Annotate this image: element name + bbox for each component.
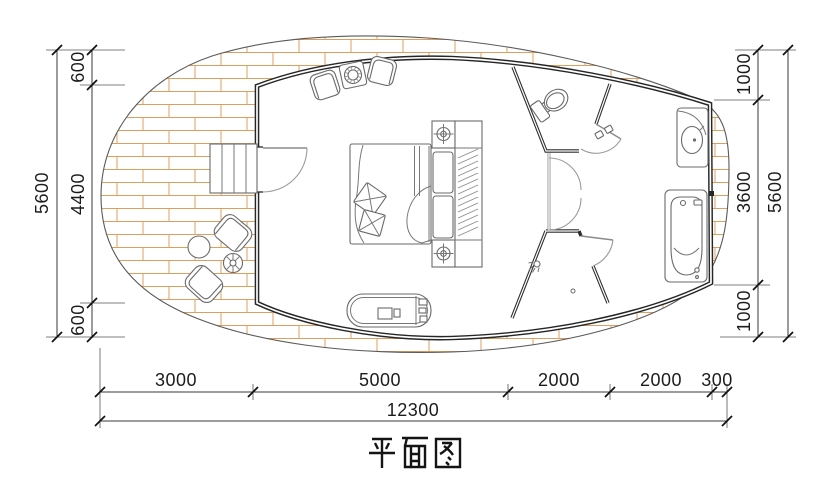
dim-label: 3000	[155, 370, 197, 390]
title-text: 平面图	[370, 436, 460, 469]
round-side-table	[188, 236, 210, 258]
tub-faucet	[681, 201, 686, 206]
dim-label: 600	[68, 51, 88, 83]
dim-label: 2000	[538, 370, 580, 390]
dim-label: 3600	[734, 171, 754, 213]
dim-label: 1000	[734, 290, 754, 332]
headboard-cushion	[433, 152, 453, 193]
dim-label: 2000	[640, 370, 682, 390]
dim-label: 4400	[68, 173, 88, 215]
dim-label: 300	[701, 370, 733, 390]
dim-label: 5600	[765, 171, 785, 213]
bathtub	[665, 190, 707, 282]
media-console	[347, 294, 431, 327]
washbasin	[677, 108, 708, 167]
dim-label: 12300	[387, 400, 440, 420]
wardrobe	[455, 121, 482, 267]
dim-label: 600	[68, 304, 88, 336]
floor-plan-svg: 600 4400 600 5600 1000 3600 1000 5600	[0, 0, 837, 496]
headboard-cushion	[433, 196, 453, 238]
dim-bottom: 3000 5000 2000 2000 300 12300	[95, 348, 733, 428]
tea-table	[339, 61, 367, 89]
floor-plan: 600 4400 600 5600 1000 3600 1000 5600	[0, 0, 837, 496]
parasol-table	[224, 254, 243, 273]
dim-label: 1000	[734, 53, 754, 95]
drawing-title: 平面图	[369, 436, 460, 469]
dim-label: 5600	[32, 172, 52, 214]
wall-joint	[709, 191, 714, 196]
nightstand-top	[432, 121, 455, 148]
building-shell	[257, 58, 714, 338]
faucet-dot	[693, 138, 696, 141]
dim-label: 5000	[359, 370, 401, 390]
armchair-right	[366, 55, 398, 87]
nightstand-bottom	[432, 240, 455, 267]
stairs	[210, 144, 257, 193]
